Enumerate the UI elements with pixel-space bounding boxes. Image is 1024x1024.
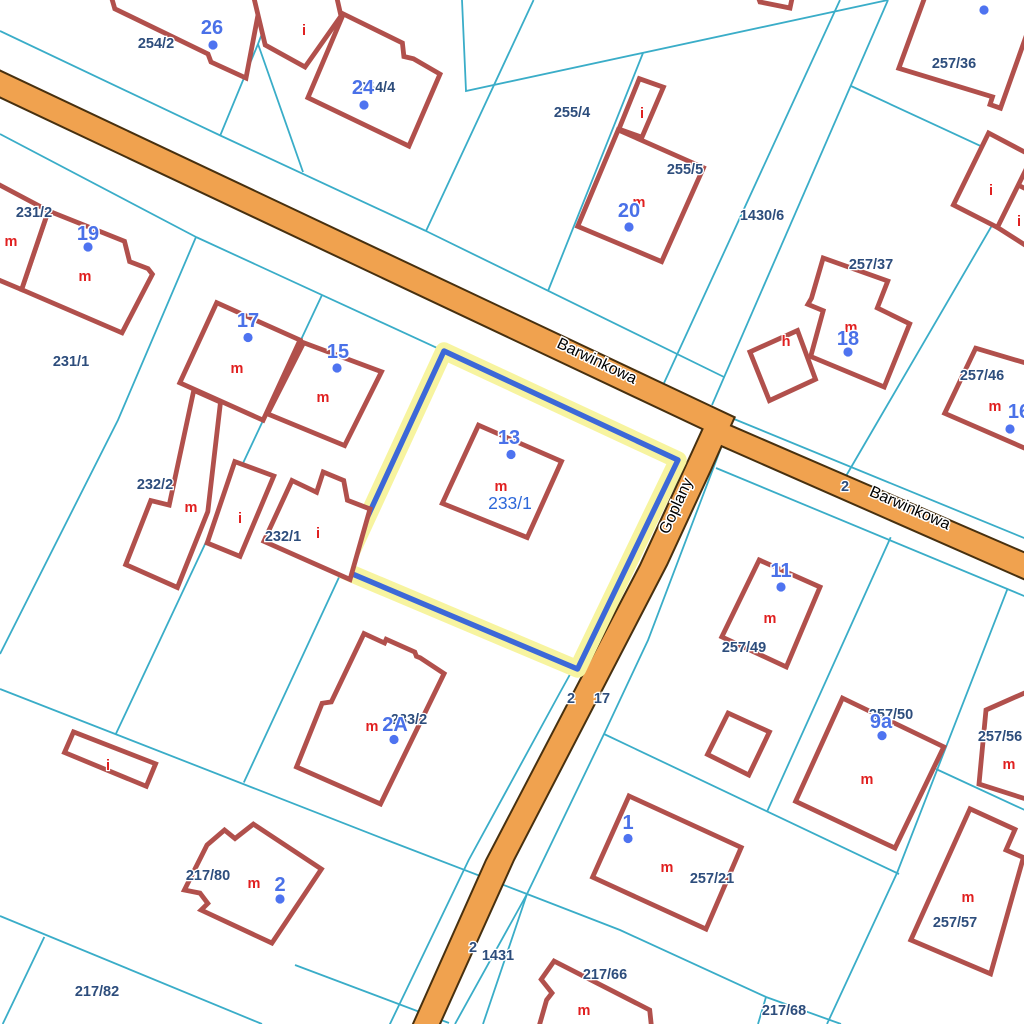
svg-text:24: 24	[352, 77, 375, 99]
svg-text:26: 26	[201, 17, 223, 39]
svg-text:257/56: 257/56	[978, 729, 1022, 745]
svg-text:m: m	[248, 876, 261, 892]
svg-text:m: m	[495, 479, 508, 495]
svg-text:m: m	[962, 890, 975, 906]
svg-text:m: m	[366, 719, 379, 735]
svg-text:m: m	[79, 269, 92, 285]
svg-text:231/2: 231/2	[16, 205, 52, 221]
svg-text:15: 15	[327, 341, 349, 363]
svg-text:i: i	[302, 23, 306, 39]
svg-text:11: 11	[770, 560, 791, 582]
svg-text:217/82: 217/82	[75, 984, 119, 1000]
svg-text:255/4: 255/4	[554, 105, 590, 121]
svg-text:2: 2	[469, 940, 477, 956]
svg-text:2A: 2A	[382, 714, 408, 736]
svg-text:257/57: 257/57	[933, 915, 977, 931]
svg-text:17: 17	[594, 691, 610, 707]
svg-text:m: m	[861, 772, 874, 788]
svg-text:217/80: 217/80	[186, 868, 230, 884]
svg-text:255/5: 255/5	[667, 162, 703, 178]
svg-text:m: m	[231, 361, 244, 377]
svg-text:17: 17	[237, 310, 259, 332]
svg-text:m: m	[989, 399, 1002, 415]
svg-text:1431: 1431	[482, 948, 514, 964]
svg-text:257/49: 257/49	[722, 640, 766, 656]
svg-text:217/66: 217/66	[583, 967, 627, 983]
svg-text:217/68: 217/68	[762, 1003, 806, 1019]
svg-text:i: i	[1017, 214, 1021, 230]
svg-text:i: i	[989, 183, 993, 199]
svg-text:i: i	[316, 526, 320, 542]
svg-text:13: 13	[498, 427, 520, 449]
svg-text:232/2: 232/2	[137, 477, 173, 493]
svg-text:257/46: 257/46	[960, 368, 1004, 384]
svg-text:h: h	[782, 334, 791, 350]
svg-text:1: 1	[622, 812, 633, 834]
svg-text:m: m	[764, 611, 777, 627]
svg-text:231/1: 231/1	[53, 354, 89, 370]
svg-text:233/1: 233/1	[488, 493, 532, 513]
svg-text:257/37: 257/37	[849, 257, 893, 273]
svg-text:20: 20	[618, 200, 640, 222]
svg-text:1430/6: 1430/6	[740, 208, 784, 224]
svg-text:16: 16	[1008, 401, 1024, 423]
svg-text:m: m	[661, 860, 674, 876]
svg-text:m: m	[185, 500, 198, 516]
svg-text:2: 2	[841, 479, 849, 495]
svg-text:m: m	[1003, 757, 1016, 773]
svg-text:i: i	[106, 758, 110, 774]
svg-text:m: m	[317, 390, 330, 406]
svg-text:m: m	[578, 1003, 591, 1019]
svg-text:i: i	[640, 106, 644, 122]
svg-text:254/2: 254/2	[138, 36, 174, 52]
svg-text:257/36: 257/36	[932, 56, 976, 72]
svg-text:232/1: 232/1	[265, 529, 301, 545]
svg-text:i: i	[238, 511, 242, 527]
svg-text:m: m	[5, 234, 18, 250]
svg-text:257/21: 257/21	[690, 871, 734, 887]
svg-text:2: 2	[567, 691, 575, 707]
